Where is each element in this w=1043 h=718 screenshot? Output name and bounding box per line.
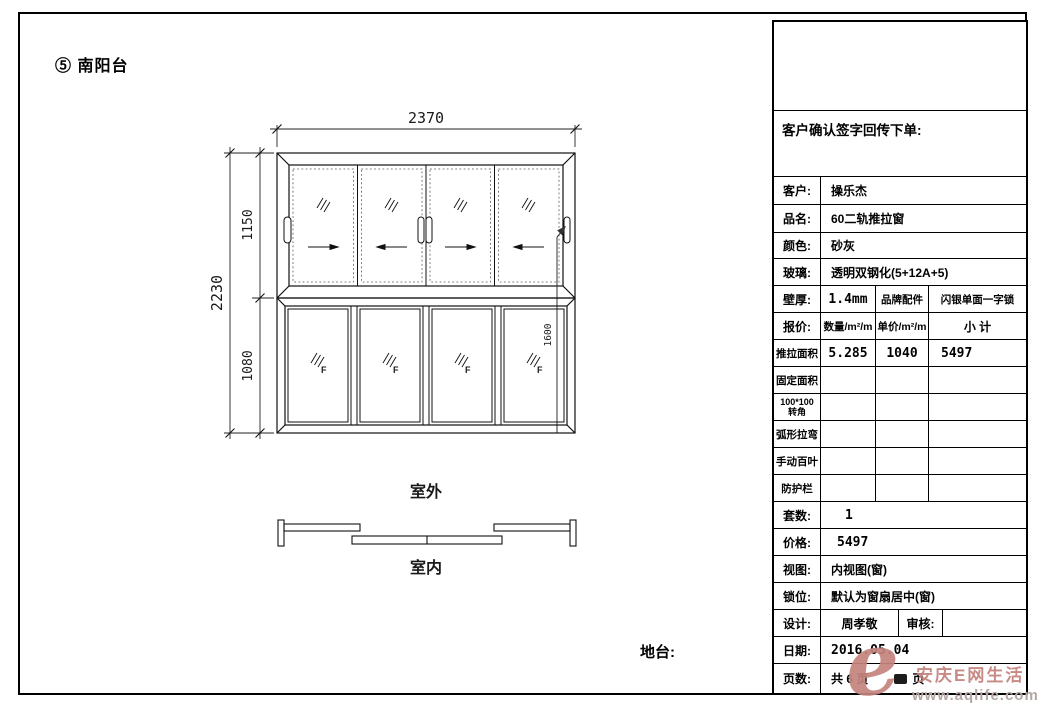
dim-width: 2370 [408, 109, 444, 127]
design-label: 设计: [774, 610, 820, 636]
table-row-corner: 100*100 转角 [774, 393, 1026, 420]
table-row-signature: 客户确认签字回传下单: [774, 110, 1026, 176]
date-value: 2016.05.04 [820, 637, 1026, 663]
lock-value: 默认为窗扇居中(窗) [820, 583, 1026, 609]
view-label: 视图: [774, 556, 820, 582]
customer-value: 操乐杰 [820, 177, 1026, 204]
brand-label: 品牌配件 [875, 286, 928, 312]
fixed-area-label: 固定面积 [774, 367, 820, 393]
table-row-empty [774, 22, 1026, 110]
color-label: 颜色: [774, 233, 820, 258]
table-row-pages: 页数: 共 6 页页 [774, 663, 1026, 693]
view-value: 内视图(窗) [820, 556, 1026, 582]
review-label: 审核: [898, 610, 942, 636]
table-row-customer: 客户: 操乐杰 [774, 176, 1026, 204]
quote-label: 报价: [774, 313, 820, 339]
corner-label: 100*100 转角 [774, 394, 820, 420]
table-row-glass: 玻璃: 透明双钢化(5+12A+5) [774, 258, 1026, 285]
glass-icon [454, 198, 467, 212]
handle-icons [284, 217, 570, 243]
color-value: 砂灰 [820, 233, 1026, 258]
table-row-design: 设计: 周孝敬 审核: [774, 609, 1026, 636]
blind-label: 手动百叶 [774, 448, 820, 474]
dim-bottom-height: 1080 [241, 350, 256, 381]
customer-label: 客户: [774, 177, 820, 204]
product-label: 品名: [774, 205, 820, 232]
wall-label: 壁厚: [774, 286, 820, 312]
sliding-area-qty: 5.285 [820, 340, 875, 366]
guard-label: 防护栏 [774, 475, 820, 501]
sets-label: 套数: [774, 502, 820, 528]
window-drawing: 2370 2230 1150 1080 [180, 95, 630, 595]
pages-value: 共 6 页页 [820, 664, 1026, 693]
sliding-area-subtotal: 5497 [928, 340, 1026, 366]
table-row-sliding-area: 推拉面积 5.285 1040 5497 [774, 339, 1026, 366]
subtotal-header: 小 计 [928, 313, 1026, 339]
arc-label: 弧形拉弯 [774, 421, 820, 447]
fixed-label: F [537, 365, 543, 375]
dim-width-lines [270, 125, 582, 147]
obscured-character [894, 674, 907, 684]
fixed-label: F [321, 365, 327, 375]
dim-total-height: 2230 [208, 275, 226, 311]
price-label: 价格: [774, 529, 820, 555]
page-title: ⑤ 南阳台 [55, 52, 128, 76]
table-row-view: 视图: 内视图(窗) [774, 555, 1026, 582]
pages-label: 页数: [774, 664, 820, 693]
indoor-label: 室内 [410, 558, 442, 577]
table-row-color: 颜色: 砂灰 [774, 232, 1026, 258]
date-label: 日期: [774, 637, 820, 663]
wall-value: 1.4mm [820, 286, 875, 312]
brand-value: 闪银单面一字锁 [928, 286, 1026, 312]
table-row-date: 日期: 2016.05.04 [774, 636, 1026, 663]
price-header: 单价/m²/m [875, 313, 928, 339]
outdoor-label: 室外 [410, 482, 442, 501]
designer-value: 周孝敬 [820, 610, 898, 636]
table-row-blind: 手动百叶 [774, 447, 1026, 474]
fixed-label: F [393, 365, 399, 375]
product-value: 60二轨推拉窗 [820, 205, 1026, 232]
table-row-quote-header: 报价: 数量/m²/m 单价/m²/m 小 计 [774, 312, 1026, 339]
table-row-product: 品名: 60二轨推拉窗 [774, 204, 1026, 232]
review-value [942, 610, 1026, 636]
glass-value: 透明双钢化(5+12A+5) [820, 259, 1026, 285]
glass-icon [385, 198, 398, 212]
sliding-area-label: 推拉面积 [774, 340, 820, 366]
table-row-price: 价格: 5497 [774, 528, 1026, 555]
table-row-wall: 壁厚: 1.4mm 品牌配件 闪银单面一字锁 [774, 285, 1026, 312]
dim-top-height: 1150 [241, 209, 256, 240]
glass-label: 玻璃: [774, 259, 820, 285]
dim-height-lines [224, 147, 274, 439]
table-row-arc: 弧形拉弯 [774, 420, 1026, 447]
sliding-area-price: 1040 [875, 340, 928, 366]
glass-icon [522, 198, 535, 212]
table-row-sets: 套数: 1 [774, 501, 1026, 528]
order-table: 客户确认签字回传下单: 客户: 操乐杰 品名: 60二轨推拉窗 颜色: 砂灰 玻… [772, 20, 1028, 695]
sets-value: 1 [820, 502, 1026, 528]
table-row-lock: 锁位: 默认为窗扇居中(窗) [774, 582, 1026, 609]
qty-header: 数量/m²/m [820, 313, 875, 339]
signature-header: 客户确认签字回传下单: [774, 111, 1026, 176]
fixed-panels [285, 306, 567, 425]
table-row-fixed-area: 固定面积 [774, 366, 1026, 393]
lock-label: 锁位: [774, 583, 820, 609]
fixed-label: F [465, 365, 471, 375]
plan-view [278, 520, 576, 546]
dim-handle-height: 1600 [543, 323, 554, 346]
price-value: 5497 [820, 529, 1026, 555]
table-row-guard: 防护栏 [774, 474, 1026, 501]
glass-icon [317, 198, 330, 212]
floor-platform-label: 地台: [640, 641, 675, 662]
